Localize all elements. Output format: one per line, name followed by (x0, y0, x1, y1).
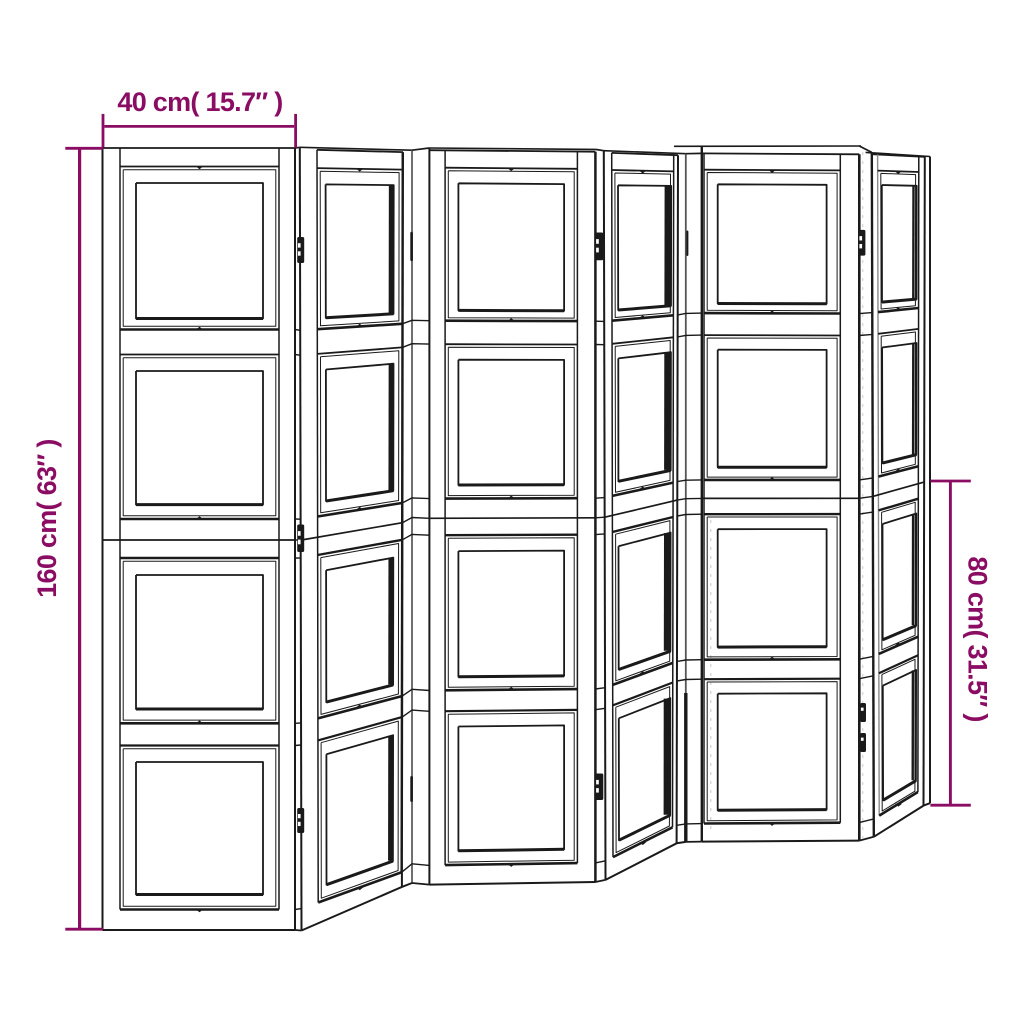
svg-text:80 cm( 31.5″ ): 80 cm( 31.5″ ) (963, 556, 993, 721)
svg-text:40 cm( 15.7″ ): 40 cm( 15.7″ ) (117, 87, 282, 117)
svg-text:160 cm( 63″ ): 160 cm( 63″ ) (32, 439, 62, 597)
